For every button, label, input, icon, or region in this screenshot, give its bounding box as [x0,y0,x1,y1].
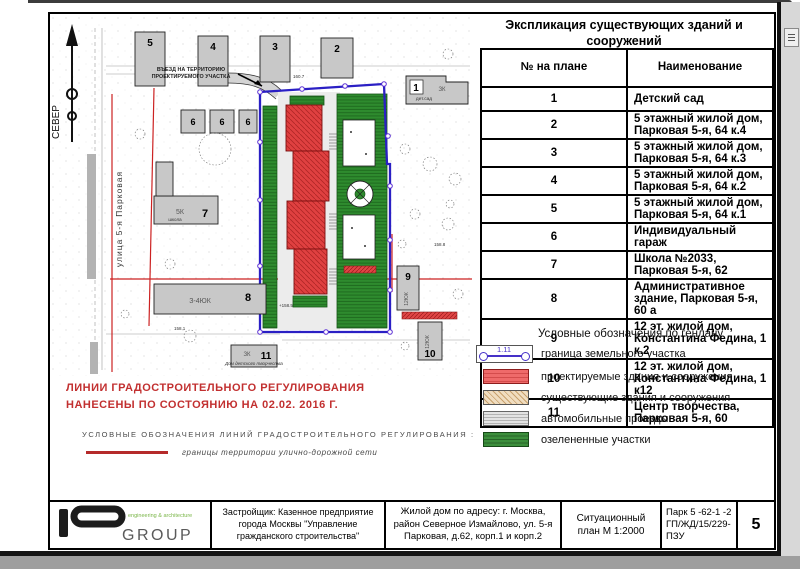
roads-symbol [483,411,529,426]
svg-text:2: 2 [334,44,340,55]
svg-text:7: 7 [202,208,208,220]
legend-label: проектируемые здания и сооружения [541,371,732,383]
genplan-legend-title: Условные обозначения по генлану [538,328,772,340]
col-header-number: № на плане [481,49,627,87]
legend-label: автомобильные проезды [541,413,668,425]
title-block: engineering & architecture GROUP Застрой… [50,500,774,548]
legend-label: озелененные участки [541,434,650,446]
table-row: 45 этажный жилой дом, Парковая 5-я, 64 к… [481,167,773,195]
document-code-cell: Парк 5 -62-1 -2 ГП/ЖД/15/229-ПЗУ [660,502,736,548]
proposed-strip-inside [344,266,376,273]
viewer-bottom-gutter [0,556,800,569]
viewer-right-gutter [781,2,800,556]
red-line-symbol [86,451,168,454]
proposed-strip-outside [402,312,457,319]
document-type-cell: Ситуационный план М 1:2000 [560,502,660,548]
genplan-legend: Условные обозначения по генлану 1.11 гра… [474,328,772,453]
col-header-name: Наименование [627,49,773,87]
svg-text:160.7: 160.7 [293,74,305,79]
table-row: 55 этажный жилой дом, Парковая 5-я, 64 к… [481,195,773,223]
regulation-legend-title: УСЛОВНЫЕ ОБОЗНАЧЕНИЯ ЛИНИЙ ГРАДОСТРОИТЕЛ… [82,430,475,439]
svg-text:З-4ЮК: З-4ЮК [189,298,212,305]
north-label: СЕВЕР [51,105,62,139]
legend-item-proposed: проектируемые здания и сооружения [474,369,772,384]
entrance-label-2: ПРОЕКТИРУЕМОГО УЧАСТКА [152,74,231,80]
regulation-legend-item: границы территории улично-дорожной сети [86,448,377,457]
table-row: 8Административное здание, Парковая 5-я, … [481,279,773,319]
svg-text:6: 6 [219,117,224,127]
b1-number: 1 [413,83,419,94]
sheet-number: 5 [736,502,774,548]
table-row: 35 этажный жилой дом, Парковая 5-я, 64 к… [481,139,773,167]
svg-text:158.8: 158.8 [434,242,446,247]
regulation-note-line2: НАНЕСЕНЫ ПО СОСТОЯНИЮ НА 02.02. 2016 Г. [66,397,365,414]
svg-text:5: 5 [147,38,153,49]
table-row: 1Детский сад [481,87,773,111]
legend-label: существующие здания и сооружения [541,392,730,404]
svg-text:3: 3 [272,42,278,53]
svg-text:ЗК: ЗК [438,87,446,93]
svg-text:9: 9 [405,272,411,283]
table-row: 7Школа №2033, Парковая 5-я, 62 [481,251,773,279]
regulation-legend-label: границы территории улично-дорожной сети [182,448,377,457]
site-plan-map: СЕВЕР улица 5-я Парковая [50,14,474,376]
existing-symbol [483,390,529,405]
roadside-strip-2 [90,342,98,374]
legend-item-roads: автомобильные проезды [474,411,772,426]
svg-text:6: 6 [245,117,250,127]
playgrounds [343,120,375,259]
svg-text:12ЮК: 12ЮК [404,292,410,306]
svg-text:ЗК: ЗК [243,352,251,358]
logo-tagline: engineering & architecture [128,513,192,519]
svg-text:158.1: 158.1 [174,326,186,331]
regulation-note: ЛИНИИ ГРАДОСТРОИТЕЛЬНОГО РЕГУЛИРОВАНИЯ Н… [66,380,365,414]
proposed-symbol [483,369,529,384]
svg-text:школа: школа [168,217,182,222]
svg-text:5К: 5К [176,209,185,216]
project-address-cell: Жилой дом по адресу: г. Москва, район Се… [384,502,560,548]
ipgroup-logo: engineering & architecture GROUP [54,504,206,546]
legend-label: граница земельного участка [541,348,686,360]
svg-text:+158.5: +158.5 [279,303,293,308]
logo-group-text: GROUP [122,527,193,544]
boundary-symbol: 1.11 [476,345,533,363]
legend-item-boundary: 1.11 граница земельного участка [474,345,772,363]
svg-text:10: 10 [424,349,436,360]
drawing-frame: СЕВЕР улица 5-я Парковая [48,12,776,550]
boundary-tag: 1.11 [497,345,511,354]
roadside-strip [87,154,96,279]
svg-text:12ЮК: 12ЮК [425,335,431,349]
svg-text:6: 6 [190,117,195,127]
regulation-note-line1: ЛИНИИ ГРАДОСТРОИТЕЛЬНОГО РЕГУЛИРОВАНИЯ [66,380,365,397]
company-logo: engineering & architecture GROUP [50,502,210,548]
table-row: 25 этажный жилой дом, Парковая 5-я, 64 к… [481,111,773,139]
panel-toggle-icon[interactable] [784,28,799,47]
developer-cell: Застройщик: Казенное предприятие города … [210,502,384,548]
street-name-label: улица 5-я Парковая [114,171,124,267]
legend-item-existing: существующие здания и сооружения [474,390,772,405]
svg-text:8: 8 [245,292,251,304]
table-header-row: № на плане Наименование [481,49,773,87]
window-top-edge [28,0,792,3]
explication-title: Экспликация существующих зданий и сооруж… [476,18,772,49]
entrance-label-1: ВЪЕЗД НА ТЕРРИТОРИЮ [157,67,226,73]
svg-text:4: 4 [210,42,216,53]
svg-text:Дом детского творчества: Дом детского творчества [224,361,283,366]
table-row: 6Индивидуальный гараж [481,223,773,251]
legend-item-green: озелененные участки [474,432,772,447]
svg-text:дет.сад: дет.сад [416,97,432,102]
green-symbol [483,432,529,447]
